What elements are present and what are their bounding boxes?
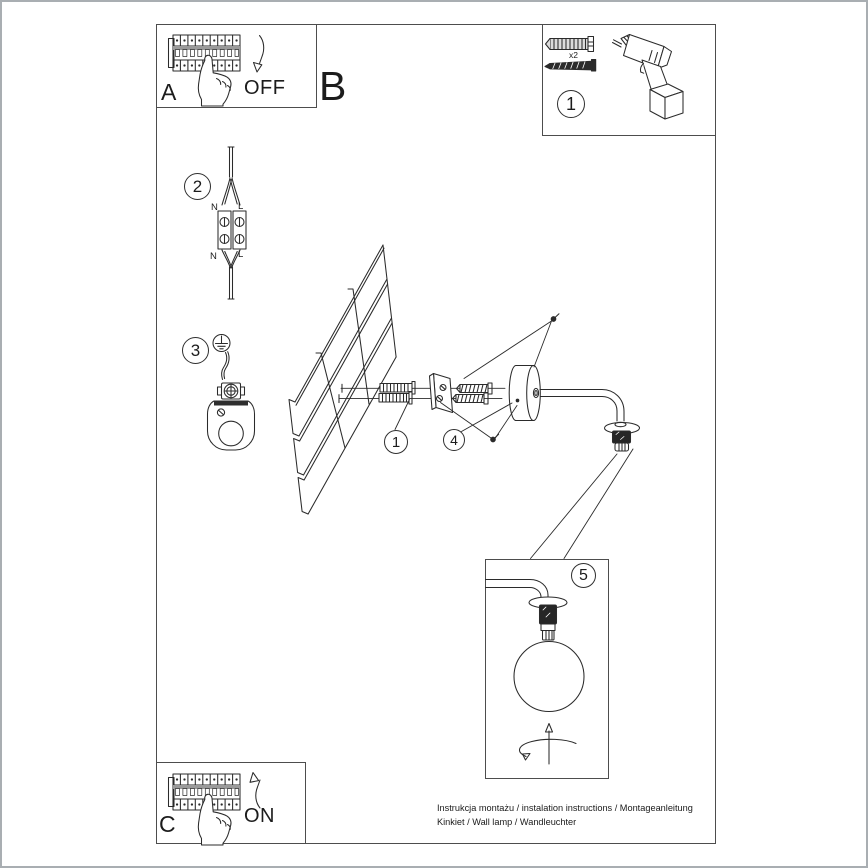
rotate-arrow-icon (520, 724, 576, 765)
callout-anchors: 1 (384, 430, 408, 454)
callout-shade: 5 (571, 563, 596, 588)
step-a-label: A (161, 81, 176, 104)
footer-line-2: Kinkiet / Wall lamp / Wandleuchter (437, 816, 693, 830)
anchor-quantity-label: x2 (569, 51, 578, 60)
instruction-sheet: A B C OFF ON x2 N L N L 1 2 3 1 4 5 Inst… (0, 0, 868, 868)
wire-l-in-label: L (238, 202, 243, 212)
mounting-cup-icon (208, 352, 255, 450)
pointing-hand-icon (198, 55, 231, 106)
wire-l-out-label: L (238, 250, 243, 260)
wire-n-out-label: N (210, 252, 217, 262)
step-c-label: C (159, 813, 176, 836)
callout-wiring: 2 (184, 173, 211, 200)
line-art-canvas (2, 2, 868, 868)
wall-anchor-screws-icon (339, 382, 505, 405)
wire-n-in-label: N (211, 203, 218, 213)
drill-icon (613, 35, 684, 120)
footer-line-1: Instrukcja montażu / instalation instruc… (437, 802, 693, 816)
callout-hardware: 1 (557, 90, 585, 118)
switch-off-label: OFF (244, 78, 286, 98)
footer-text: Instrukcja montażu / instalation instruc… (437, 802, 693, 830)
canopy-screws-leaders (395, 314, 633, 559)
screw-icon (545, 60, 596, 72)
globe-shade-icon (486, 580, 585, 712)
curved-arrow-down-icon (254, 36, 264, 73)
earth-symbol-icon (213, 335, 230, 352)
circuit-breaker-panel-icon (169, 35, 241, 106)
wall-panel-icon (289, 245, 396, 514)
wall-bracket-icon (430, 374, 453, 413)
curved-arrow-up-icon (250, 773, 260, 809)
callout-ground: 3 (182, 337, 209, 364)
step-b-label: B (319, 66, 346, 107)
callout-bracket: 4 (443, 429, 465, 451)
terminal-block-icon (218, 147, 246, 299)
switch-on-label: ON (244, 806, 275, 826)
canopy-arm-icon (509, 366, 639, 452)
